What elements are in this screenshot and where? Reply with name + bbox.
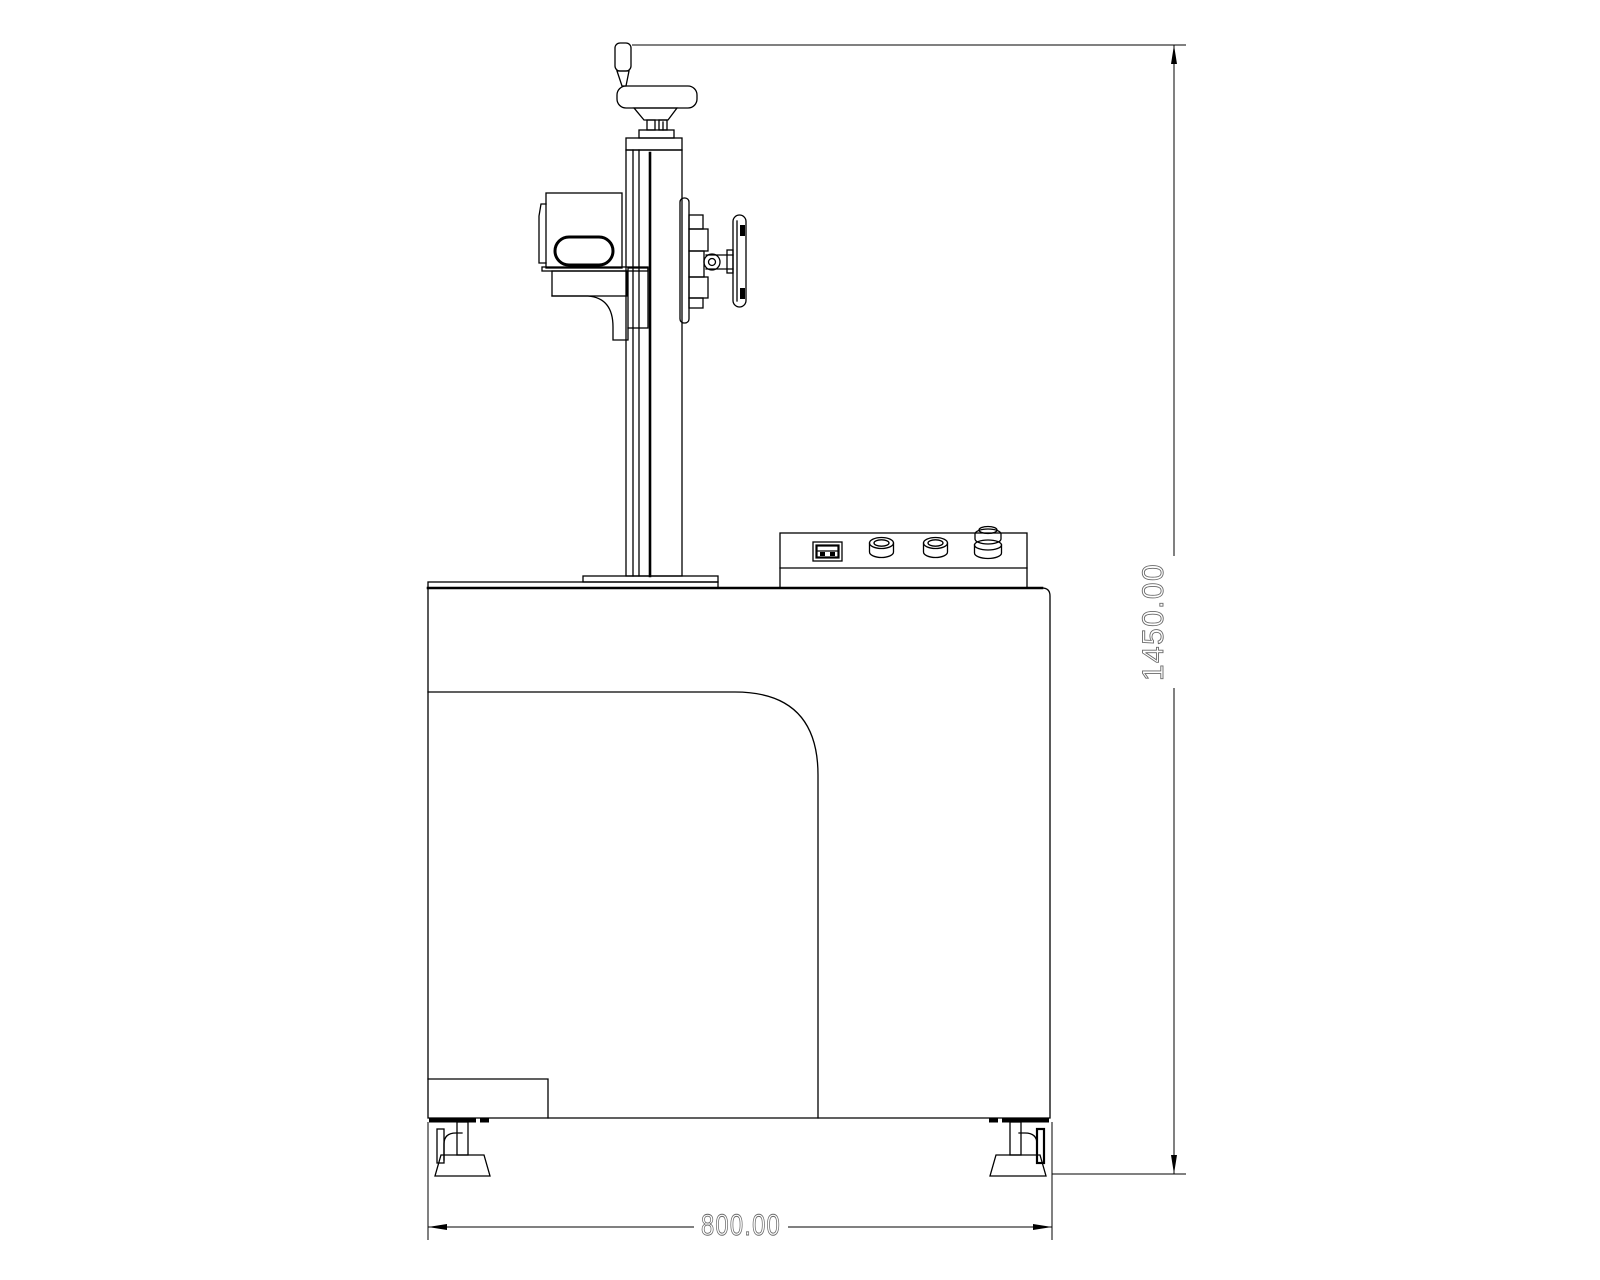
lens-aperture-slot [555,237,613,265]
head-mount-plate [552,271,627,296]
head-side-flange [539,204,546,263]
focus-carriage [680,198,746,323]
carriage-block [689,277,708,298]
height-dimension-label: 1450.00 [1137,563,1170,681]
usb-pin-icon [820,552,825,556]
control-panel [780,527,1027,589]
dimension-arrow-up-icon [1171,45,1177,64]
width-dimension-label: 800.00 [701,1209,781,1242]
cabinet-kick-panel [428,1079,548,1118]
cabinet-door-seam [428,692,818,1118]
carriage-back-plate [680,198,689,323]
foot-bracket-fillet [444,1133,462,1160]
foot-stem [457,1122,468,1155]
panel-button-1[interactable] [870,538,894,558]
foot-bracket-fillet [1019,1133,1037,1160]
estop-collar [975,540,1002,550]
foot-stem [1010,1122,1021,1155]
carriage-block [689,229,708,251]
leveling-foot-right [989,1121,1049,1177]
estop-base [975,545,1002,559]
dimension-arrow-right-icon [1033,1224,1052,1230]
crank-grip [615,43,631,71]
handwheel-hub-taper [634,108,677,120]
button-cap-icon [928,540,943,546]
dimension-arrow-down-icon [1171,1155,1177,1174]
crank-handwheel-disc [617,86,697,108]
cabinet-outline [428,588,1050,1118]
hub-screw-left [647,120,655,130]
head-mount-cove [552,296,628,340]
button-body [924,543,948,558]
drawing-canvas: 1450.00 800.00 [0,0,1600,1280]
carriage-block [689,298,703,308]
tabletop [428,576,1042,588]
crank-grip-taper [617,71,629,86]
emergency-stop-button[interactable] [975,527,1002,559]
usb-pin-icon [830,552,835,556]
head-slider-block [628,268,648,328]
dimension-arrow-left-icon [428,1224,447,1230]
leveling-foot-left [429,1121,490,1177]
button-cap-icon [874,540,889,546]
foot-pad [435,1155,490,1176]
panel-button-2[interactable] [924,538,948,558]
carriage-block [689,251,704,277]
width-dimension: 800.00 [428,1122,1052,1242]
machine-cabinet [428,588,1050,1118]
usb-port[interactable] [813,542,842,561]
carriage-block [689,215,703,229]
column-body [626,150,682,576]
column-collar [639,130,674,138]
shaft-bolt-icon [704,254,720,270]
elevation-crank [615,43,697,138]
handwheel-knob-top [740,225,745,236]
support-column [626,138,682,576]
handwheel-knob-bottom [740,288,745,299]
column-top-cap [626,138,682,150]
laser-scan-head [539,193,648,340]
button-body [870,543,894,558]
height-dimension: 1450.00 [632,45,1186,1174]
shaft-bolt-center-icon [709,259,716,266]
machine-elevation-drawing: 1450.00 800.00 [0,0,1600,1280]
